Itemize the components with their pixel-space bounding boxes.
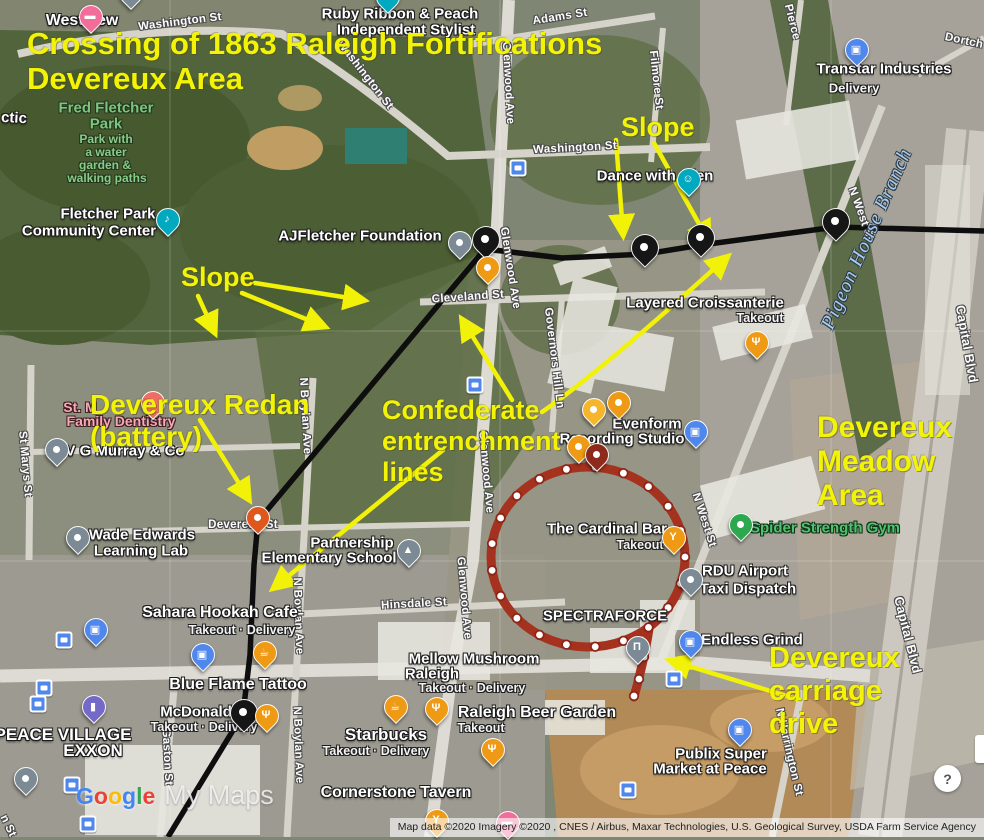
- annotation-confederate-entrenchment-lines: Confederateentrenchmentlines: [382, 395, 561, 487]
- google-watermark: Google My Maps: [76, 780, 274, 811]
- map-title-line2: Devereux Area: [27, 62, 602, 97]
- annotation-slope-left: Slope: [181, 262, 255, 293]
- google-logo: Google: [76, 783, 155, 810]
- google-logo-letter: G: [76, 783, 94, 809]
- annotation-devereux-redan: Devereux Redan(battery): [90, 389, 309, 453]
- annotation-slope-right: Slope: [621, 112, 695, 143]
- google-logo-letter: o: [94, 783, 108, 809]
- annotation-devereux-carriage-drive: Devereuxcarriagedrive: [769, 642, 900, 741]
- google-logo-letter: o: [108, 783, 122, 809]
- annotation-devereux-meadow-area: DevereuxMeadowArea: [817, 411, 952, 514]
- google-logo-letter: g: [122, 783, 136, 809]
- help-button[interactable]: ?: [934, 765, 961, 792]
- map-attribution: Map data ©2020 Imagery ©2020 , CNES / Ai…: [390, 818, 984, 837]
- map-title: Crossing of 1863 Raleigh Fortifications …: [27, 27, 602, 96]
- my-maps-label: My Maps: [164, 780, 274, 811]
- map-control-partial[interactable]: [975, 735, 984, 763]
- map-title-line1: Crossing of 1863 Raleigh Fortifications: [27, 27, 602, 62]
- google-logo-letter: e: [142, 783, 155, 809]
